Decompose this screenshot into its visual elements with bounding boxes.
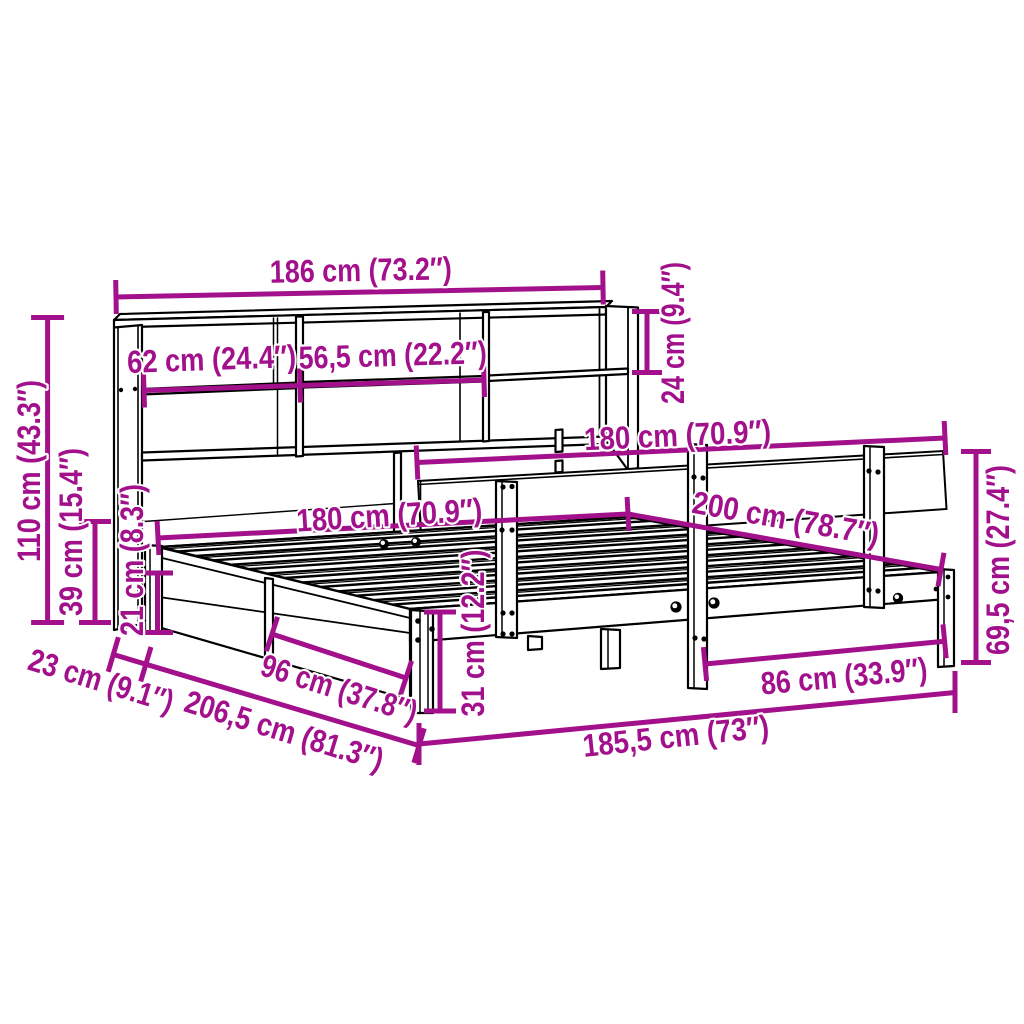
svg-text:56,5 cm (22.2″): 56,5 cm (22.2″) bbox=[298, 334, 487, 376]
svg-text:39 cm (15.4″): 39 cm (15.4″) bbox=[53, 448, 89, 616]
svg-text:69,5 cm (27.4″): 69,5 cm (27.4″) bbox=[980, 465, 1016, 655]
svg-text:62 cm (24.4″): 62 cm (24.4″) bbox=[127, 338, 297, 380]
svg-text:110 cm (43.3″): 110 cm (43.3″) bbox=[11, 380, 47, 562]
svg-text:21 cm (8.3″): 21 cm (8.3″) bbox=[114, 484, 150, 636]
svg-text:31 cm (12.2″): 31 cm (12.2″) bbox=[455, 550, 491, 717]
svg-text:24 cm (9.4″): 24 cm (9.4″) bbox=[655, 262, 691, 404]
svg-text:186 cm (73.2″): 186 cm (73.2″) bbox=[269, 250, 452, 289]
